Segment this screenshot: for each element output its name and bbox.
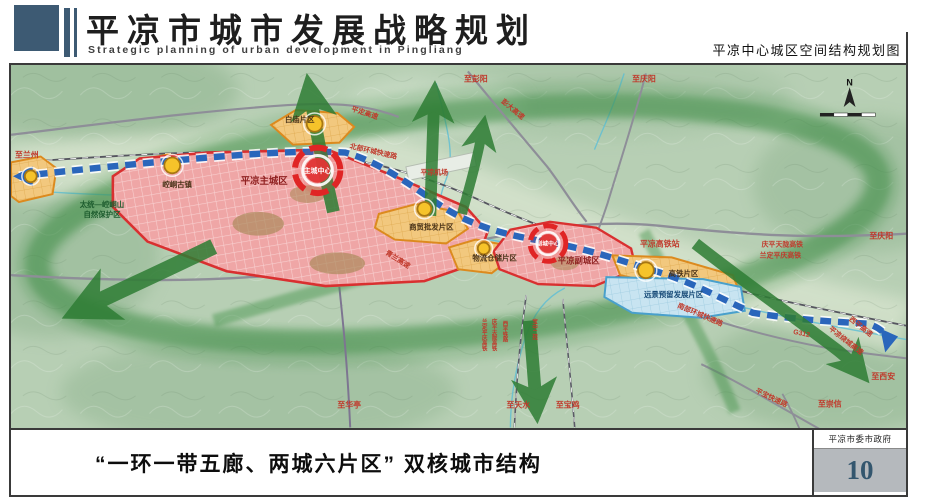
page-subtitle-en: Strategic planning of urban development … (88, 44, 464, 56)
compass-n-label: N (846, 77, 852, 87)
label-to-huating: 至华亭 (337, 400, 361, 410)
planning-document-page: 平凉市城市发展战略规划 Strategic planning of urban … (0, 0, 925, 500)
label-to-tianshui: 至天水 (506, 400, 530, 410)
label-nature-reserve-line1: 太统—崆峒山 (80, 199, 124, 209)
label-to-xian: 至西安 (871, 371, 895, 381)
city-center-marker-main: 主城中心 (295, 148, 340, 193)
label-main-city: 平凉主城区 (241, 175, 289, 186)
map-canvas: 主城中心 副城中心 N 至兰州 平定高速 (11, 65, 906, 428)
footer: “一环一带五廊、两城六片区” 双核城市结构 平凉市委市政府 10 (9, 430, 908, 497)
node-hsr (635, 259, 657, 281)
map-caption: “一环一带五廊、两城六片区” 双核城市结构 (11, 430, 812, 495)
label-to-pengyang: 至彭阳 (464, 73, 488, 83)
label-baimiao-district: 白庙片区 (285, 114, 315, 124)
label-sub-city: 平凉副城区 (558, 255, 601, 265)
map-sheet-title: 平凉中心城区空间结构规划图 (712, 40, 901, 59)
label-hsr-station: 平凉高铁站 (640, 239, 680, 249)
agency-label: 平凉市委市政府 (814, 430, 906, 449)
label-to-baoji: 至宝鸡 (556, 400, 580, 410)
label-nature-reserve-line2: 自然保护区 (83, 209, 121, 219)
node-kongtong (161, 155, 183, 177)
label-rail-baozhong: 宝中二线 (531, 317, 538, 341)
label-to-qingyang-right: 至庆阳 (869, 231, 893, 241)
eco-arrow-north-2 (430, 97, 434, 216)
label-rail-xiping: 西平铁路 (501, 319, 508, 343)
page-border-right (906, 32, 908, 66)
scale-bar (820, 113, 875, 116)
label-pingliang-airport: 平凉机场 (420, 167, 448, 176)
label-qingping-hsr: 庆平天陇高铁 (761, 240, 804, 249)
page-number: 10 (814, 449, 906, 492)
label-landing-hsr: 兰定平庆高铁 (760, 250, 802, 259)
page-number-box: 平凉市委市政府 10 (812, 430, 906, 495)
planning-map: 主城中心 副城中心 N 至兰州 平定高速 (9, 63, 908, 430)
label-to-chongxin: 至崇信 (818, 399, 842, 409)
label-to-qingyang-top: 至庆阳 (632, 73, 656, 83)
logo-square (14, 5, 59, 51)
header-accent-bar-thin (74, 8, 77, 57)
label-reserved-district: 远景预留发展片区 (644, 289, 704, 299)
node-wholesale (414, 199, 434, 219)
label-sub-city-center: 副城中心 (536, 240, 560, 248)
label-wholesale-district: 商贸批发片区 (409, 222, 454, 232)
label-to-lanzhou: 至兰州 (15, 149, 39, 159)
node-left-edge (22, 167, 40, 185)
label-kongtong-town: 崆峒古镇 (162, 179, 192, 189)
label-logistics-district: 物流仓储片区 (472, 252, 517, 262)
label-main-city-center: 主城中心 (304, 166, 332, 175)
label-hsr-district: 高铁片区 (669, 268, 699, 278)
header-accent-bar (64, 8, 70, 57)
